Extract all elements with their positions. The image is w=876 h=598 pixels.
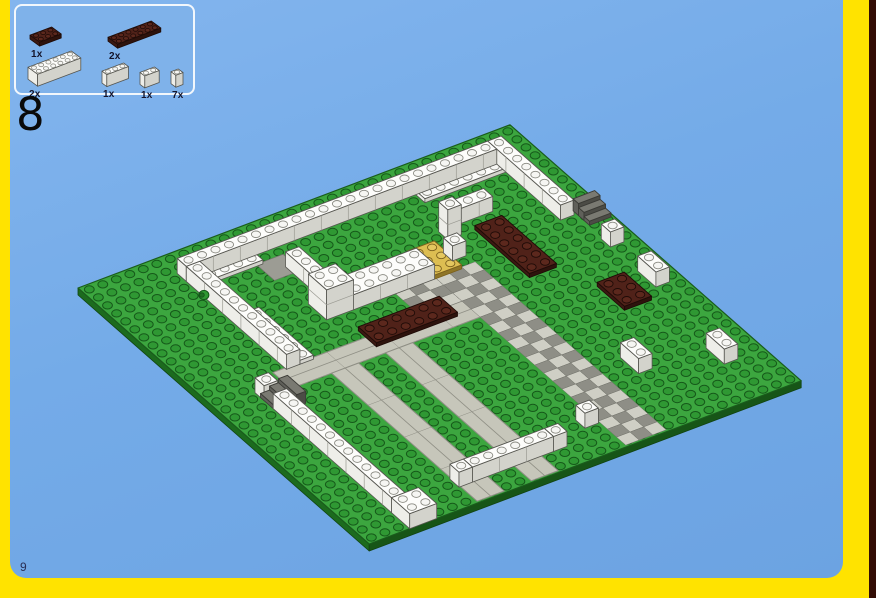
part-brown-plate-2x6: 2x <box>106 16 163 62</box>
white-brick-1x2-icon <box>138 62 162 91</box>
parts-callout-box: 1x2x2x1x1x7x <box>14 4 195 95</box>
part-white-brick-1x3: 1x <box>100 58 131 100</box>
part-count-label: 7x <box>172 90 185 101</box>
instruction-page: 1x2x2x1x1x7x 8 9 <box>0 0 876 598</box>
part-count-label: 1x <box>103 89 131 100</box>
white-brick-1x1-icon <box>169 64 185 91</box>
part-white-brick-1x1: 7x <box>169 64 185 101</box>
white-brick-1x3-icon <box>100 58 131 90</box>
page-right-edge <box>869 0 876 598</box>
white-brick-2x6-icon <box>26 46 83 90</box>
step-number: 8 <box>16 92 45 137</box>
part-white-brick-1x2: 1x <box>138 62 162 101</box>
part-count-label: 1x <box>141 90 162 101</box>
page-number: 9 <box>20 560 27 574</box>
brown-plate-2x6-icon <box>106 16 163 52</box>
